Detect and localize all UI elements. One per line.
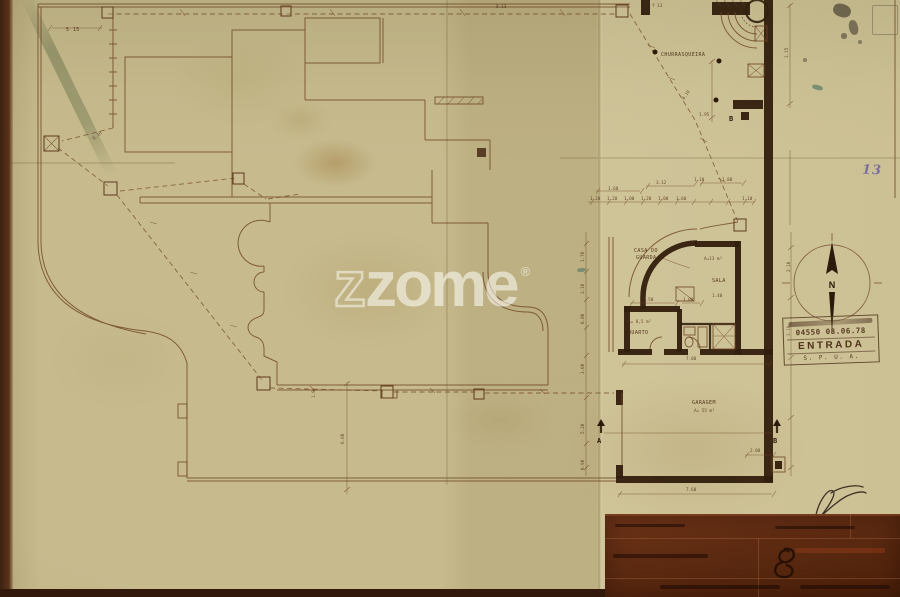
- label-dim-string-3: 1.00: [624, 196, 635, 202]
- watermark-logo: zzome®: [334, 252, 530, 316]
- label-section-a: A: [597, 437, 602, 445]
- label-sala-area: A=13 m²: [704, 256, 722, 262]
- title-block-text-smear: [615, 524, 685, 527]
- label-churrasqueira: CHURRASQUEIRA: [661, 52, 705, 58]
- label-casa-do: CASA DO: [634, 248, 658, 254]
- title-block-text-smear: [800, 585, 890, 589]
- watermark-word: zome: [365, 248, 517, 320]
- label-dim-string-2: 1.20: [607, 196, 618, 202]
- label-dim-810-left: 8.10: [91, 130, 103, 142]
- label-dim-f13: f 13: [652, 3, 663, 9]
- label-dim-195: 1.95: [699, 112, 710, 118]
- label-quarto-area: A= 8,5 m²: [628, 319, 651, 325]
- label-marker-b-top: B: [729, 115, 733, 123]
- signature-ink: [816, 486, 866, 517]
- title-block-text-smear: [795, 548, 885, 553]
- label-dim-v520: 5.20: [580, 423, 586, 434]
- label-dim-200: 2.00: [750, 448, 761, 454]
- label-garagem-area: A= 55 m²: [694, 408, 715, 414]
- label-dim-r210: 2.10: [786, 261, 792, 272]
- label-dim-110: 1.10: [694, 177, 705, 183]
- label-dim-v310: 3.10: [580, 283, 586, 294]
- label-dim-760: 7.60: [686, 487, 697, 493]
- label-dim-100: 1.00: [683, 297, 694, 303]
- label-dim-string-5: 1.00: [658, 196, 669, 202]
- paper-bottom-edge: [0, 589, 608, 597]
- stamp-entrada-word: ENTRADA: [787, 336, 875, 354]
- label-garagem: GARAGEM: [692, 400, 716, 406]
- label-dim-string-7: 1.10: [742, 196, 753, 202]
- municipal-emblem-icon: [767, 546, 801, 580]
- registered-trademark-icon: ®: [521, 264, 531, 279]
- label-compass-n: N: [829, 280, 836, 290]
- ink-dot: [803, 58, 807, 62]
- label-dim-160: 1.60: [608, 186, 619, 192]
- title-block-text-smear: [613, 554, 708, 558]
- label-dim-v090: 0.90: [580, 459, 586, 470]
- title-block-text-smear: [775, 526, 855, 529]
- label-dim-515: 5 15: [66, 27, 80, 33]
- ink-smudge: [841, 33, 847, 39]
- label-dim-180: 1.80: [722, 177, 733, 183]
- page-number: 13: [862, 163, 883, 179]
- label-guarda: GUARDA: [636, 255, 656, 261]
- watermark-outline-z: z: [334, 248, 363, 320]
- label-dim-813: 8.13: [496, 4, 507, 10]
- label-dim-810-right: 8.10: [681, 89, 692, 101]
- label-dim-350: 3.50: [643, 297, 654, 303]
- title-block-grid-line: [605, 578, 900, 579]
- label-dim-19: 1.9: [311, 390, 317, 398]
- title-block-text-smear: [660, 585, 780, 589]
- label-dim-115: 1.15: [784, 47, 790, 58]
- label-dim-660: 6.60: [340, 433, 346, 444]
- pencil-rectangle-mark: [872, 5, 898, 35]
- label-dim-140: 1.40: [712, 293, 723, 299]
- title-block-grid-line: [605, 538, 900, 539]
- label-dim-string-4: 1.20: [641, 196, 652, 202]
- stamp-registration-number: 04550 08.06.78: [787, 325, 875, 337]
- scanned-site-plan-page: A B B CHURRASQUEIRA CASA DO GUARDA A=13 …: [0, 0, 900, 597]
- label-dim-string-6: 1.60: [676, 196, 687, 202]
- label-sala: SALA: [712, 278, 726, 284]
- label-dim-v170: 1.70: [580, 251, 586, 262]
- title-block: [605, 514, 900, 597]
- compass-needle-north: [826, 242, 838, 274]
- label-section-b: B: [773, 437, 777, 445]
- entry-stamp: 04550 08.06.78 ENTRADA S. P. U. A.: [782, 314, 880, 365]
- label-dim-312: 3.12: [656, 180, 667, 186]
- paper-left-edge: [0, 0, 13, 597]
- label-dim-700: 7.00: [686, 356, 697, 362]
- label-dim-string-1: 1.20: [590, 196, 601, 202]
- label-dim-v080: 0.80: [580, 313, 586, 324]
- section-markers: A B B: [597, 115, 781, 445]
- label-dim-v300: 3.00: [580, 363, 586, 374]
- ink-smudge: [858, 40, 862, 44]
- main-house-outline: [125, 18, 548, 398]
- label-quarto: QUARTO: [628, 330, 648, 336]
